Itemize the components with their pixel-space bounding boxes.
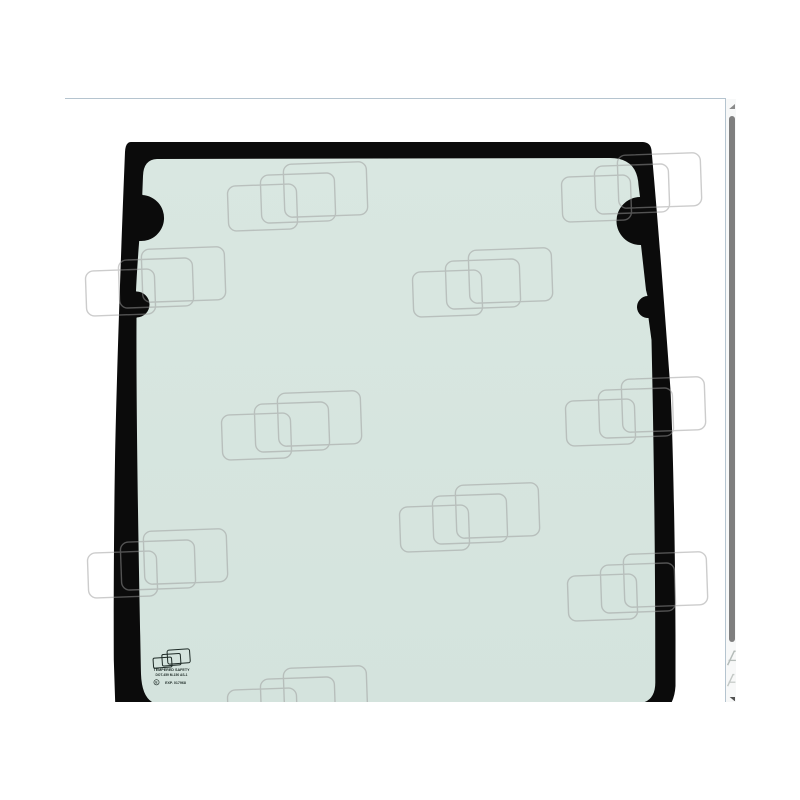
svg-text:EXP. 017968: EXP. 017968 <box>165 681 186 685</box>
svg-text:DOT-459 M-150 AS-1: DOT-459 M-150 AS-1 <box>156 673 188 677</box>
svg-text:TEMPERED SAFETY: TEMPERED SAFETY <box>153 668 190 672</box>
svg-text:E: E <box>155 681 157 685</box>
